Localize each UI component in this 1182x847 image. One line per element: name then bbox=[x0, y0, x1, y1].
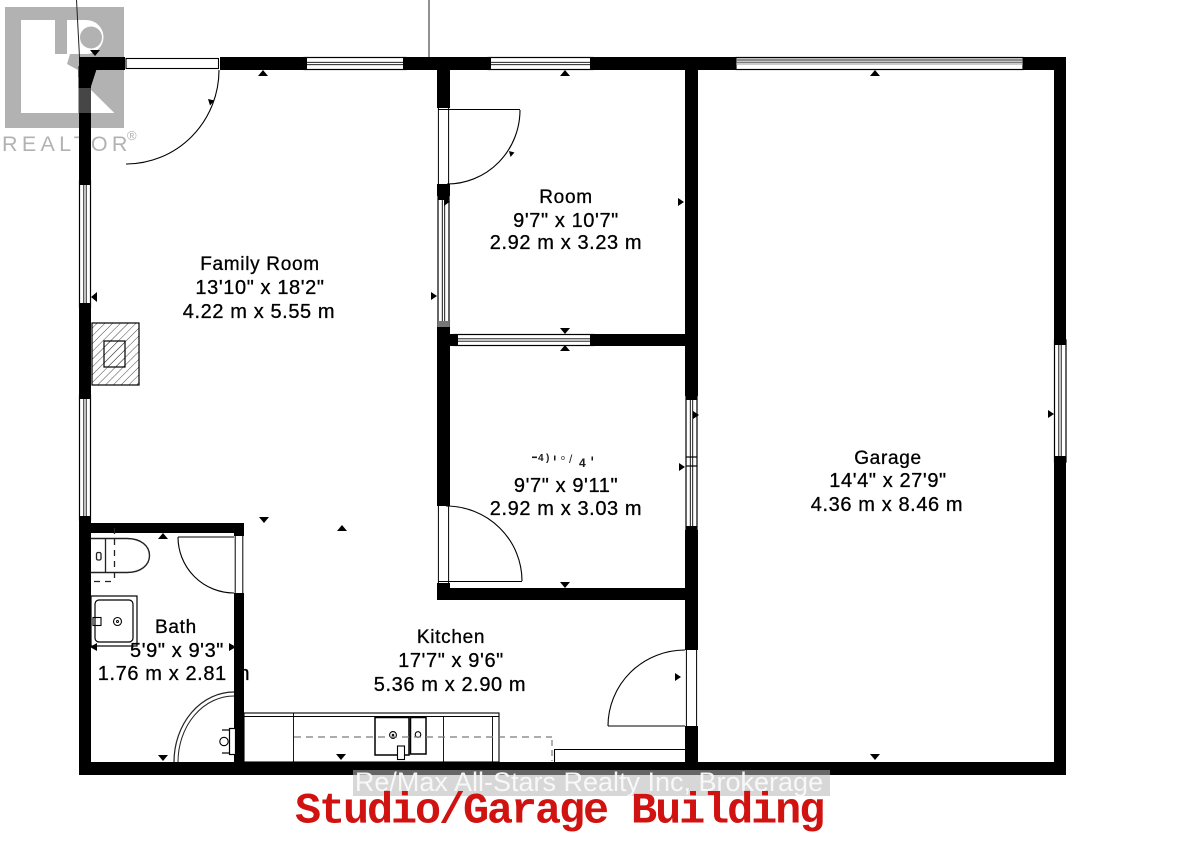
svg-text:Studio/Garage Building: Studio/Garage Building bbox=[295, 788, 823, 837]
svg-text:Garage: Garage bbox=[854, 448, 922, 469]
svg-text:5'9" x 9'3": 5'9" x 9'3" bbox=[130, 640, 224, 662]
svg-text:1.76 m x 2.81 m: 1.76 m x 2.81 m bbox=[98, 663, 250, 685]
svg-text:9'7" x 10'7": 9'7" x 10'7" bbox=[513, 210, 619, 232]
svg-text:REALTOR: REALTOR bbox=[2, 132, 132, 156]
svg-text:5.36 m x 2.90 m: 5.36 m x 2.90 m bbox=[374, 674, 526, 696]
svg-text:o: o bbox=[561, 455, 565, 462]
svg-text:): ) bbox=[546, 453, 549, 464]
svg-text:4: 4 bbox=[579, 456, 586, 470]
svg-text:Kitchen: Kitchen bbox=[417, 627, 485, 648]
svg-text:13'10" x 18'2": 13'10" x 18'2" bbox=[195, 277, 324, 299]
svg-text:4.36 m x 8.46 m: 4.36 m x 8.46 m bbox=[811, 494, 963, 516]
svg-text:®: ® bbox=[127, 128, 137, 143]
svg-text:9'7" x 9'11": 9'7" x 9'11" bbox=[514, 475, 618, 497]
svg-text:4.22 m x 5.55 m: 4.22 m x 5.55 m bbox=[183, 301, 335, 323]
svg-text:4: 4 bbox=[538, 453, 544, 464]
svg-text:2.92 m x 3.23 m: 2.92 m x 3.23 m bbox=[490, 232, 642, 254]
svg-text:14'4" x 27'9": 14'4" x 27'9" bbox=[829, 470, 947, 492]
svg-text:Bath: Bath bbox=[155, 617, 197, 638]
svg-text:2.92 m x 3.03 m: 2.92 m x 3.03 m bbox=[490, 498, 642, 520]
svg-text:17'7" x 9'6": 17'7" x 9'6" bbox=[398, 650, 504, 672]
svg-text:Room: Room bbox=[539, 187, 592, 208]
svg-text:Family Room: Family Room bbox=[200, 254, 320, 275]
